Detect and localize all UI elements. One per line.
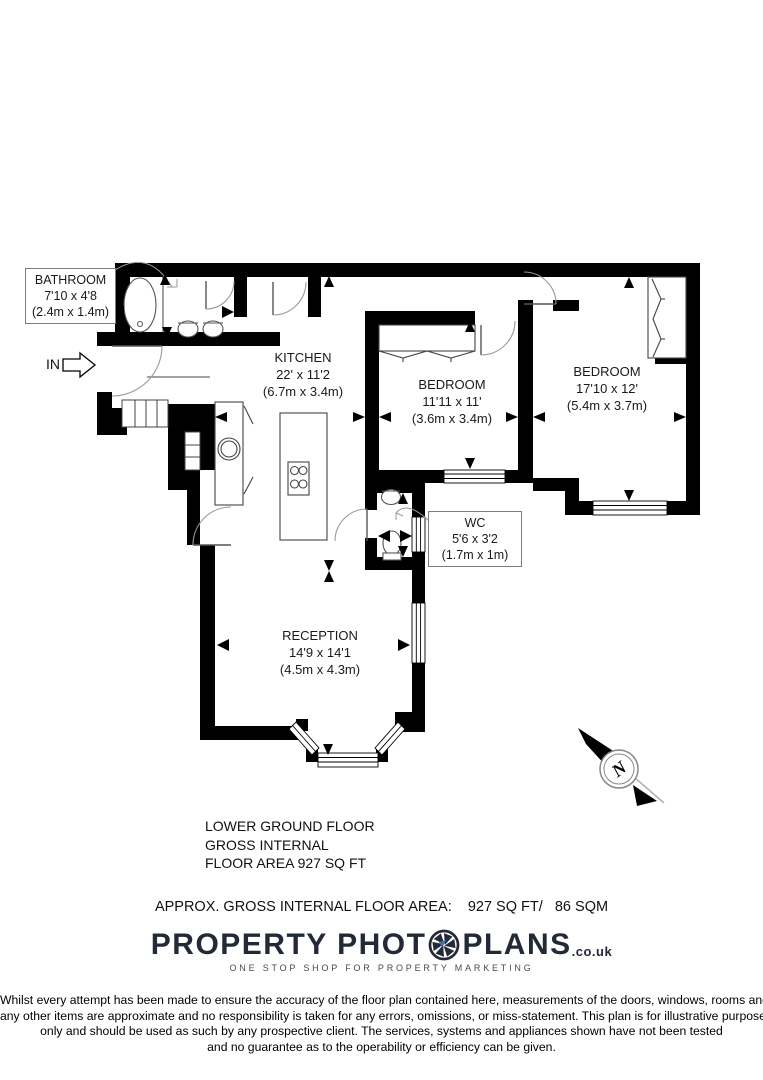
room-name: BATHROOM (32, 272, 109, 288)
disclaimer-line: Whilst every attempt has been made to en… (0, 993, 763, 1009)
room-size-metric: (6.7m x 3.4m) (263, 383, 343, 400)
brand-logo: PROPERTY PHOT PLANS .co.uk ONE STOP SHOP… (0, 928, 763, 973)
logo-text-left: PROPERTY PHOT (151, 928, 427, 962)
floor-summary-line: GROSS INTERNAL (205, 836, 375, 855)
floor-summary-line: LOWER GROUND FLOOR (205, 817, 375, 836)
hob (288, 462, 309, 495)
bathroom-fixtures (124, 277, 223, 337)
gross-area-line: APPROX. GROSS INTERNAL FLOOR AREA: 927 S… (0, 899, 763, 915)
disclaimer: Whilst every attempt has been made to en… (0, 993, 763, 1055)
room-name: KITCHEN (263, 349, 343, 366)
room-size-imperial: 22' x 11'2 (263, 366, 343, 383)
room-size-imperial: 17'10 x 12' (567, 380, 647, 397)
disclaimer-line: and no guarantee as to the operability o… (0, 1040, 763, 1056)
disclaimer-line: only and should be used as such by any p… (0, 1024, 763, 1040)
logo-domain: .co.uk (572, 944, 613, 959)
room-size-imperial: 5'6 x 3'2 (435, 531, 515, 547)
room-size-metric: (5.4m x 3.7m) (567, 397, 647, 414)
disclaimer-line: any other items are approximate and no r… (0, 1009, 763, 1025)
logo-tagline: ONE STOP SHOP FOR PROPERTY MARKETING (0, 963, 763, 973)
wc-label: WC 5'6 x 3'2 (1.7m x 1m) (428, 511, 522, 567)
wc-fixtures (382, 490, 402, 561)
room-name: RECEPTION (280, 627, 360, 644)
room-size-metric: (3.6m x 3.4m) (412, 410, 492, 427)
room-size-imperial: 14'9 x 14'1 (280, 644, 360, 661)
room-size-metric: (2.4m x 1.4m) (32, 304, 109, 320)
room-size-imperial: 7'10 x 4'8 (32, 288, 109, 304)
bathroom-label: BATHROOM 7'10 x 4'8 (2.4m x 1.4m) (25, 268, 116, 324)
compass-icon: N (578, 728, 664, 806)
room-name: BEDROOM (412, 376, 492, 393)
floorplan-page: N BATHROOM 7'10 x 4'8 (2.4m x 1.4m) IN K… (0, 0, 763, 1080)
room-size-imperial: 11'11 x 11' (412, 393, 492, 410)
room-size-metric: (4.5m x 4.3m) (280, 661, 360, 678)
entrance-label: IN (46, 356, 60, 372)
reception-label: RECEPTION 14'9 x 14'1 (4.5m x 4.3m) (280, 627, 360, 678)
room-name: WC (435, 515, 515, 531)
entrance-arrow-icon (63, 353, 95, 377)
kitchen-label: KITCHEN 22' x 11'2 (6.7m x 3.4m) (263, 349, 343, 400)
room-size-metric: (1.7m x 1m) (435, 547, 515, 563)
bedroom2-label: BEDROOM 17'10 x 12' (5.4m x 3.7m) (567, 363, 647, 414)
logo-text-right: PLANS (462, 928, 571, 962)
floor-summary: LOWER GROUND FLOOR GROSS INTERNAL FLOOR … (205, 817, 375, 873)
floor-summary-line: FLOOR AREA 927 SQ FT (205, 854, 375, 873)
camera-aperture-icon (427, 928, 461, 962)
room-name: BEDROOM (567, 363, 647, 380)
bedroom1-label: BEDROOM 11'11 x 11' (3.6m x 3.4m) (412, 376, 492, 427)
kitchen-fixtures (215, 402, 327, 540)
floor-plan-drawing: N (0, 0, 763, 1080)
